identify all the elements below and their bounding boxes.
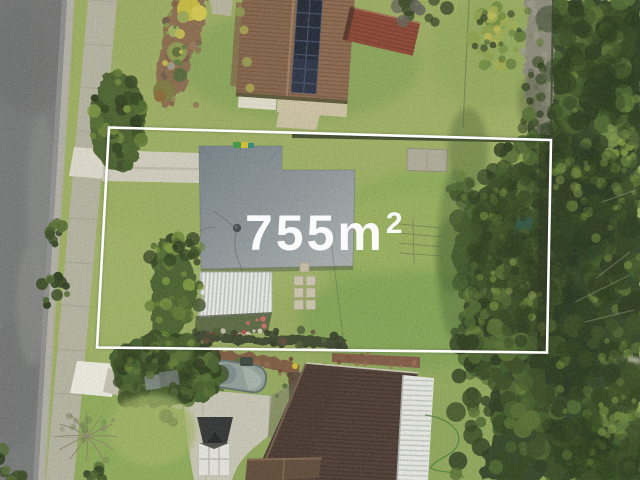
svg-text:755m2: 755m2 [245,205,406,261]
